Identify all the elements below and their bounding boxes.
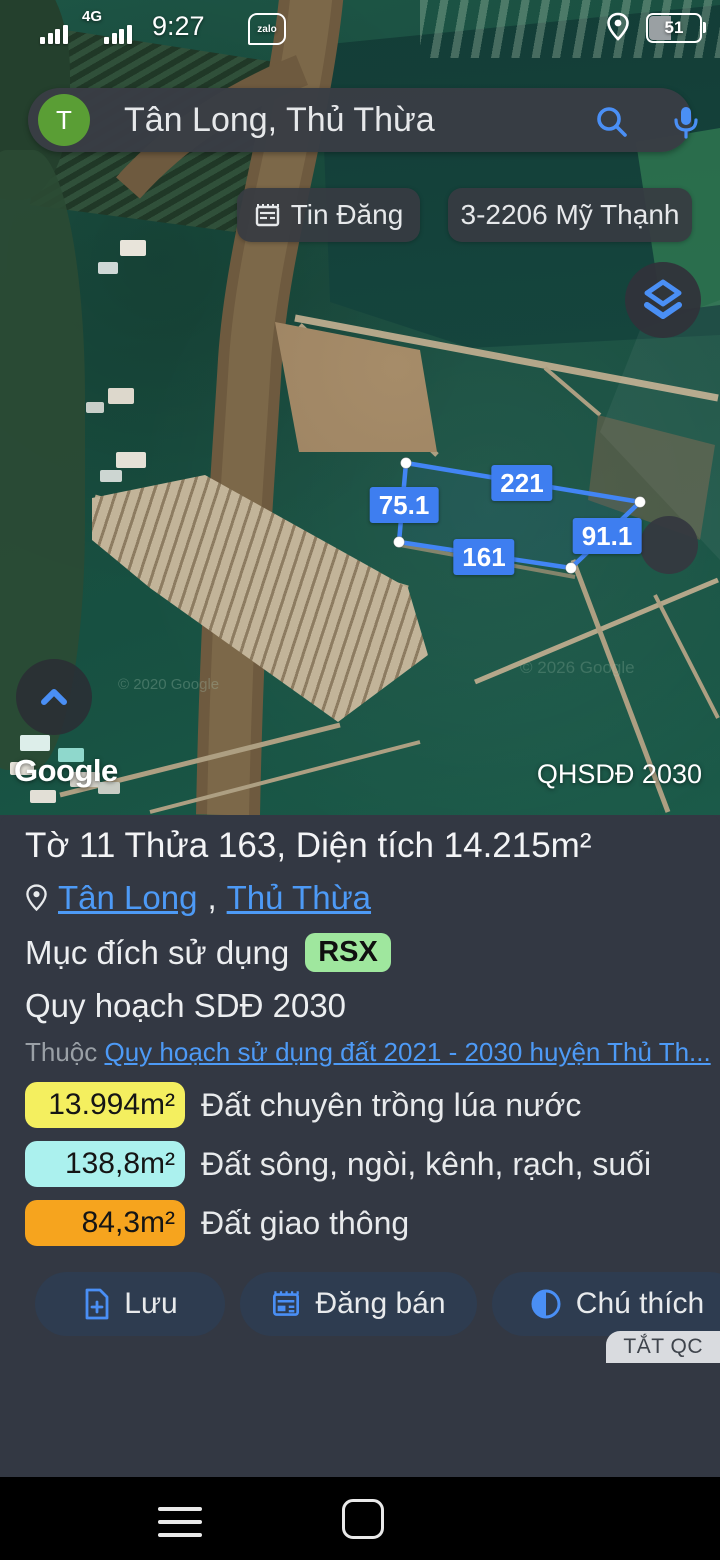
land-purpose-row: Mục đích sử dụng RSX [25,933,391,972]
signal-bars-icon [40,25,68,44]
map-layers-button[interactable] [625,262,701,338]
parcel-info-panel: Tờ 11 Thửa 163, Diện tích 14.215m² Tân L… [0,815,720,1477]
battery-nub [703,22,707,33]
sell-post-label: Đăng bán [315,1287,445,1321]
status-bar: 4G 9:27 zalo 51 [0,0,720,56]
zalo-notification-icon: zalo [248,13,286,45]
google-logo: Google [14,753,118,789]
location-pin-icon [25,883,48,913]
home-button[interactable] [342,1499,384,1539]
legend-button[interactable]: Chú thích [492,1272,720,1336]
area-badge-road: 84,3m² [25,1200,185,1246]
news-icon [271,1289,301,1319]
district-link[interactable]: Thủ Thừa [227,879,371,917]
network-type-label: 4G [82,8,102,25]
phone-screen: © 2020 Google © 2026 Google 221 75.1 91.… [0,0,720,1560]
battery-icon: 51 [646,13,702,43]
android-nav-bar [0,1477,720,1560]
parcel-location-row: Tân Long, Thủ Thừa [25,879,371,917]
parcel-id-pill[interactable]: 3-2206 Mỹ Thạnh [448,188,692,242]
edge-length-bottom: 161 [453,539,514,575]
purpose-label: Mục đích sử dụng [25,934,289,972]
area-badge-river: 138,8m² [25,1141,185,1187]
land-type-label: Đất giao thông [201,1205,409,1242]
layers-icon [637,274,689,326]
land-type-row: 84,3m² Đất giao thông [25,1200,409,1246]
belongs-prefix: Thuộc [25,1037,105,1067]
save-label: Lưu [124,1287,177,1321]
area-badge-rice: 13.994m² [25,1082,185,1128]
parcel-title: Tờ 11 Thửa 163, Diện tích 14.215m² [25,826,592,866]
parcel-id-label: 3-2206 Mỹ Thạnh [461,199,680,231]
microphone-icon[interactable] [666,102,706,147]
edge-length-right: 91.1 [573,518,642,554]
location-active-icon [606,12,630,47]
file-plus-icon [82,1288,110,1320]
news-feed-pill[interactable]: Tin Đăng [237,188,420,242]
avatar[interactable]: T [38,94,90,146]
battery-percent: 51 [665,18,684,38]
news-icon [254,202,281,229]
edge-length-top: 221 [491,465,552,501]
land-type-label: Đất chuyên trồng lúa nước [201,1087,581,1124]
land-type-row: 13.994m² Đất chuyên trồng lúa nước [25,1082,581,1128]
map-marker-circle [640,516,698,574]
edge-length-left: 75.1 [370,487,439,523]
sell-post-button[interactable]: Đăng bán [240,1272,477,1336]
search-bar[interactable]: T Tân Long, Thủ Thừa [28,88,692,152]
search-icon[interactable] [592,102,632,147]
signal-bars-icon [104,25,132,44]
collapse-panel-button[interactable] [16,659,92,735]
plan-overlay-label: QHSDĐ 2030 [537,759,702,790]
recent-apps-button[interactable] [158,1507,202,1537]
plan-belongs-row: Thuộc Quy hoạch sử dụng đất 2021 - 2030 … [25,1037,715,1068]
dismiss-ad-button[interactable]: TẮT QC [606,1331,720,1363]
legend-label: Chú thích [576,1287,704,1321]
clock: 9:27 [152,11,205,42]
plan-document-link[interactable]: Quy hoạch sử dụng đất 2021 - 2030 huyện … [105,1037,711,1067]
land-type-label: Đất sông, ngòi, kênh, rạch, suối [201,1146,651,1183]
save-button[interactable]: Lưu [35,1272,225,1336]
purpose-code-badge: RSX [305,933,391,972]
land-type-row: 138,8m² Đất sông, ngòi, kênh, rạch, suối [25,1141,651,1187]
chevron-up-icon [30,673,78,721]
news-feed-label: Tin Đăng [291,199,404,231]
search-input[interactable]: Tân Long, Thủ Thừa [124,88,435,152]
commune-link[interactable]: Tân Long [58,879,197,917]
location-separator: , [207,879,216,917]
contrast-icon [530,1288,562,1320]
plan-label: Quy hoạch SDĐ 2030 [25,987,346,1025]
